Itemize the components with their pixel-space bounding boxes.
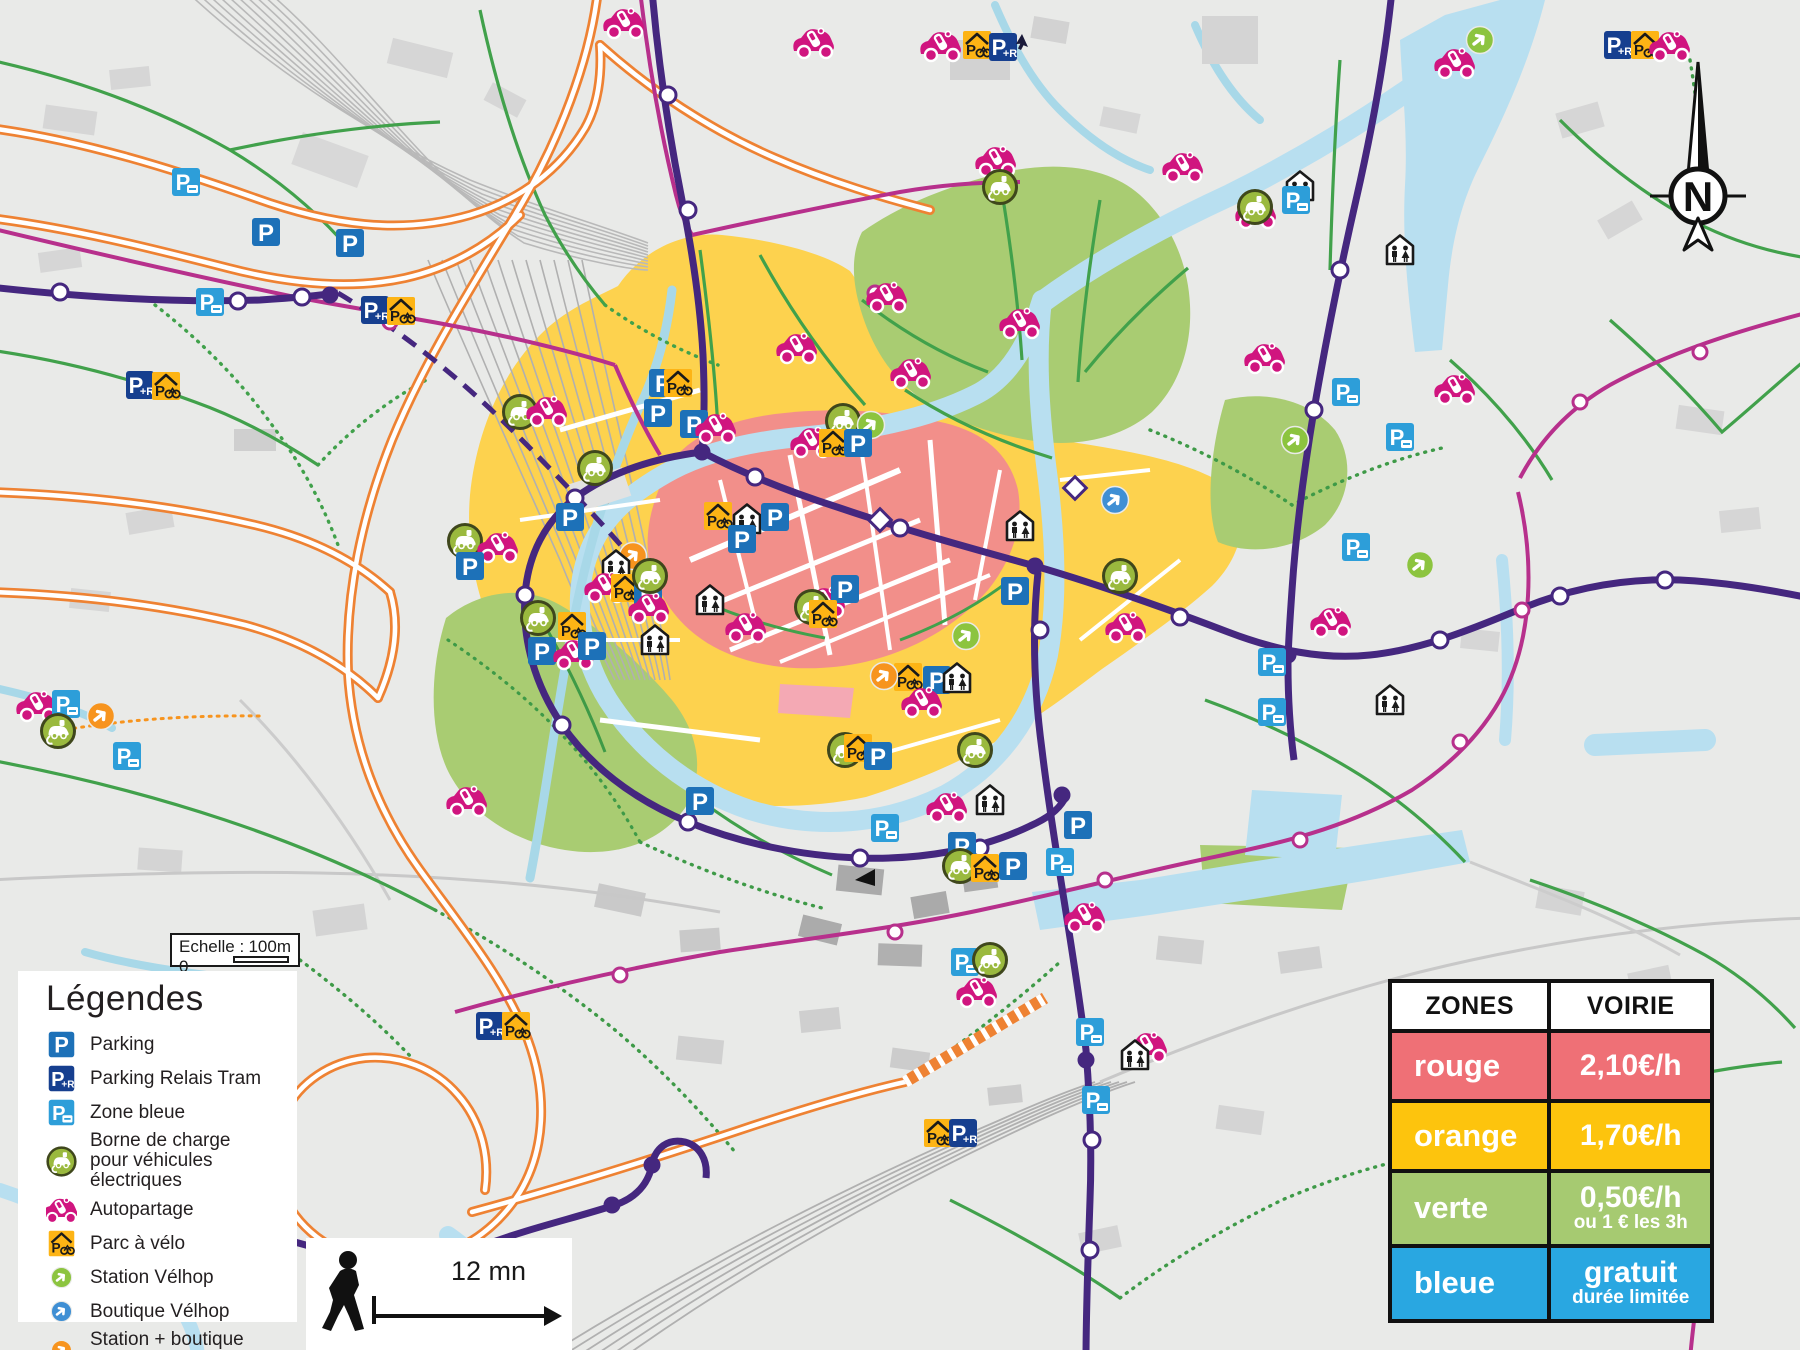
- legend-item-velo: Parc à vélo: [46, 1228, 287, 1259]
- bus-stop[interactable]: [1573, 395, 1587, 409]
- station-velhop-marker[interactable]: [1282, 427, 1309, 454]
- river: [1502, 560, 1508, 740]
- bus-stop[interactable]: [613, 968, 627, 982]
- parking-marker[interactable]: [761, 503, 789, 532]
- parking-relais-tram-marker-legend-icon: [46, 1063, 77, 1094]
- north-compass: N: [1650, 62, 1746, 250]
- river: [1595, 740, 1705, 745]
- autopartage-marker[interactable]: [1162, 152, 1203, 182]
- zone-bleue-marker[interactable]: [1082, 1086, 1110, 1114]
- toilettes-publiques-marker[interactable]: [977, 786, 1003, 815]
- zone-bleue-marker[interactable]: [1076, 1018, 1104, 1046]
- building: [1278, 946, 1323, 974]
- station-velhop-marker[interactable]: [953, 623, 980, 650]
- building: [137, 847, 182, 872]
- tram-stop[interactable]: [554, 717, 570, 733]
- building: [1202, 16, 1258, 64]
- tram-stop[interactable]: [294, 289, 310, 305]
- tram-junction: [1027, 558, 1044, 575]
- zone-bleue-marker[interactable]: [113, 742, 141, 770]
- tram-stop[interactable]: [747, 469, 763, 485]
- parking-marker[interactable]: [556, 503, 584, 532]
- parking-marker[interactable]: [528, 637, 556, 666]
- parc-a-velo-marker[interactable]: [502, 1012, 530, 1040]
- legend-item-zb: Zone bleue: [46, 1097, 287, 1128]
- zone-bleue-marker[interactable]: [1258, 698, 1286, 726]
- zone-bleue-marker[interactable]: [871, 814, 899, 842]
- table-header-zones: ZONES: [1392, 983, 1547, 1029]
- zone-area: [1211, 396, 1348, 549]
- legend-label: Boutique Vélhop: [90, 1302, 229, 1322]
- building: [1216, 1105, 1265, 1135]
- parking-marker[interactable]: [252, 218, 280, 247]
- tram-stop[interactable]: [1082, 1242, 1098, 1258]
- tram-stop[interactable]: [517, 587, 533, 603]
- building: [799, 1007, 841, 1033]
- station-velhop-marker[interactable]: [1467, 27, 1494, 54]
- tram-stop[interactable]: [1432, 632, 1448, 648]
- legend-label: Borne de chargepour véhicules électrique…: [90, 1131, 287, 1191]
- building: [291, 132, 368, 188]
- tram-stop[interactable]: [1084, 1132, 1100, 1148]
- canal-basin: [1245, 790, 1342, 860]
- building: [1156, 936, 1204, 965]
- parking-marker[interactable]: [999, 852, 1027, 881]
- zone-bleue-marker[interactable]: [1282, 186, 1310, 214]
- zone-bleue-marker-legend-icon: [46, 1097, 77, 1128]
- autopartage-marker[interactable]: [956, 977, 997, 1007]
- borne-de-charge-marker[interactable]: [42, 715, 75, 748]
- zone-bleue-marker[interactable]: [1342, 533, 1370, 561]
- boutique-velhop-marker[interactable]: [1102, 487, 1129, 514]
- bus-stop[interactable]: [1515, 603, 1529, 617]
- tram-junction: [1078, 1052, 1095, 1069]
- autopartage-marker[interactable]: [920, 31, 961, 61]
- autopartage-marker[interactable]: [1310, 607, 1351, 637]
- legend-item-pr: Parking Relais Tram: [46, 1063, 287, 1094]
- zone-price-bleue: gratuitdurée limitée: [1551, 1248, 1710, 1319]
- parking-marker[interactable]: [1064, 811, 1092, 840]
- zone-name-verte: verte: [1392, 1173, 1547, 1244]
- building: [1597, 200, 1643, 239]
- boutique-velhop-marker-legend-icon: [46, 1296, 77, 1327]
- tram-stop[interactable]: [1032, 622, 1048, 638]
- scale-bar: [233, 956, 289, 963]
- zone-area: [778, 684, 854, 718]
- borne-de-charge-marker[interactable]: [959, 734, 992, 767]
- pedestrian-icon: [322, 1251, 364, 1331]
- zone-price-verte: 0,50€/hou 1 € les 3h: [1551, 1173, 1710, 1244]
- table-header-voirie: VOIRIE: [1551, 983, 1710, 1029]
- borne-de-charge-marker[interactable]: [634, 560, 667, 593]
- parc-a-velo-marker[interactable]: [963, 31, 991, 59]
- parc-a-velo-marker[interactable]: [971, 854, 999, 882]
- zone-name-rouge: rouge: [1392, 1033, 1547, 1099]
- legend-item-bv: Boutique Vélhop: [46, 1296, 287, 1327]
- zone-bleue-marker[interactable]: [196, 288, 224, 316]
- parc-a-velo-marker[interactable]: [664, 369, 692, 397]
- parc-a-velo-marker[interactable]: [704, 502, 732, 530]
- walk-distance-arrow: [374, 1296, 562, 1326]
- tram-junction: [694, 444, 711, 461]
- borne-de-charge-marker[interactable]: [974, 944, 1007, 977]
- parking-marker[interactable]: [864, 742, 892, 771]
- station-boutique-velhop-marker[interactable]: [871, 663, 898, 690]
- tram-stop[interactable]: [230, 293, 246, 309]
- building: [387, 38, 453, 78]
- building: [1555, 101, 1604, 138]
- parking-marker[interactable]: [456, 552, 484, 581]
- zone-bleue-marker[interactable]: [1046, 848, 1074, 876]
- autopartage-marker[interactable]: [603, 8, 644, 38]
- building: [878, 943, 923, 967]
- legend-item-p: Parking: [46, 1029, 287, 1060]
- river: [995, 5, 1150, 170]
- tram-stop[interactable]: [1552, 588, 1568, 604]
- walk-scale-box: 12 mn: [306, 1238, 572, 1350]
- borne-de-charge-marker[interactable]: [522, 602, 555, 635]
- legend-panel: Légendes ParkingParking Relais TramZone …: [18, 971, 297, 1322]
- building: [1719, 507, 1761, 533]
- parc-a-velo-marker[interactable]: [809, 600, 837, 628]
- parking-marker[interactable]: [578, 632, 606, 661]
- borne-de-charge-marker-legend-icon: [46, 1146, 77, 1177]
- building: [43, 104, 98, 135]
- parc-a-velo-marker[interactable]: [819, 429, 847, 457]
- building: [312, 904, 367, 937]
- autopartage-marker[interactable]: [793, 28, 834, 58]
- building: [1030, 16, 1069, 44]
- tram-junction: [322, 287, 339, 304]
- bus-stop[interactable]: [888, 925, 902, 939]
- tram-junction: [604, 1197, 621, 1214]
- legend-label: Parking: [90, 1035, 154, 1055]
- tram-stop[interactable]: [852, 850, 868, 866]
- legend-label: Station + boutique Vélhop: [90, 1330, 287, 1350]
- zone-bleue-marker[interactable]: [1332, 378, 1360, 406]
- building: [1099, 106, 1140, 133]
- zone-name-orange: orange: [1392, 1103, 1547, 1169]
- building: [987, 1084, 1023, 1105]
- bus-stop[interactable]: [1693, 345, 1707, 359]
- parking-marker[interactable]: [336, 229, 364, 258]
- autopartage-marker[interactable]: [1244, 343, 1285, 373]
- bus-stop[interactable]: [1098, 873, 1112, 887]
- station-velhop-marker[interactable]: [1407, 552, 1434, 579]
- tram-stop[interactable]: [680, 202, 696, 218]
- station-velhop-marker-legend-icon: [46, 1262, 77, 1293]
- station-boutique-velhop-marker-legend-icon: [46, 1335, 77, 1350]
- parc-a-velo-marker[interactable]: [924, 1119, 952, 1147]
- legend-label: Parking Relais Tram: [90, 1069, 261, 1089]
- parking-relais-tram-marker[interactable]: [476, 1012, 504, 1040]
- tram-junction: [1054, 787, 1071, 804]
- borne-de-charge-marker[interactable]: [984, 171, 1017, 204]
- tram-stop[interactable]: [1332, 262, 1348, 278]
- borne-de-charge-marker[interactable]: [579, 452, 612, 485]
- building: [234, 429, 276, 451]
- lake: [1400, 0, 1545, 352]
- parking-marker[interactable]: [728, 525, 756, 554]
- legend-title: Légendes: [46, 979, 287, 1019]
- borne-de-charge-marker[interactable]: [1104, 560, 1137, 593]
- road-magenta: [1520, 312, 1800, 478]
- legend-item-charge: Borne de chargepour véhicules électrique…: [46, 1131, 287, 1191]
- map-scale-box: Echelle : 0 100m: [170, 933, 300, 967]
- building: [910, 891, 949, 919]
- zone-bleue-marker[interactable]: [1258, 648, 1286, 676]
- building: [676, 1036, 724, 1065]
- tram-stop[interactable]: [1172, 609, 1188, 625]
- parking-relais-tram-marker[interactable]: [126, 371, 154, 399]
- parking-marker[interactable]: [831, 575, 859, 604]
- zone-name-bleue: bleue: [1392, 1248, 1547, 1319]
- legend-item-auto: Autopartage: [46, 1194, 287, 1225]
- autopartage-marker-legend-icon: [46, 1194, 77, 1225]
- legend-item-sbv: Station + boutique Vélhop: [46, 1330, 287, 1350]
- station-boutique-velhop-marker[interactable]: [88, 703, 115, 730]
- walk-duration-label: 12 mn: [451, 1256, 526, 1287]
- tram-stop[interactable]: [1657, 572, 1673, 588]
- parking-marker-legend-icon: [46, 1029, 77, 1060]
- parc-a-velo-marker[interactable]: [152, 372, 180, 400]
- parking-marker[interactable]: [686, 787, 714, 816]
- compass-label: N: [1683, 173, 1713, 220]
- building: [109, 66, 151, 90]
- parc-a-velo-marker[interactable]: [387, 297, 415, 325]
- parking-relais-tram-marker[interactable]: [949, 1119, 977, 1147]
- zone-bleue-marker[interactable]: [1386, 423, 1414, 451]
- zones-pricing-table: ZONES VOIRIE rouge 2,10€/h orange 1,70€/…: [1388, 979, 1714, 1323]
- parking-marker[interactable]: [1001, 577, 1029, 606]
- tram-stop[interactable]: [660, 87, 676, 103]
- tram-stop[interactable]: [892, 520, 908, 536]
- building: [38, 247, 82, 273]
- tram-junction: [644, 1157, 661, 1174]
- legend-label: Autopartage: [90, 1200, 194, 1220]
- zone-price-rouge: 2,10€/h: [1551, 1033, 1710, 1099]
- toilettes-publiques-marker[interactable]: [1377, 686, 1403, 715]
- zone-bleue-marker[interactable]: [172, 168, 200, 196]
- legend-label: Zone bleue: [90, 1103, 185, 1123]
- building: [679, 928, 720, 953]
- bus-stop[interactable]: [1293, 833, 1307, 847]
- legend-item-sv: Station Vélhop: [46, 1262, 287, 1293]
- parking-relais-tram-marker[interactable]: [1604, 31, 1632, 59]
- legend-label: Station Vélhop: [90, 1268, 214, 1288]
- bus-stop[interactable]: [1453, 735, 1467, 749]
- parking-marker[interactable]: [644, 399, 672, 428]
- tram-stop[interactable]: [1306, 402, 1322, 418]
- city-parking-map: P P +R P P: [0, 0, 1800, 1350]
- borne-de-charge-marker[interactable]: [1239, 191, 1272, 224]
- parking-marker[interactable]: [844, 429, 872, 458]
- parking-relais-tram-marker[interactable]: [989, 33, 1017, 61]
- tram-stop[interactable]: [680, 814, 696, 830]
- legend-label: Parc à vélo: [90, 1234, 185, 1254]
- parc-a-velo-marker-legend-icon: [46, 1228, 77, 1259]
- tram-stop[interactable]: [52, 284, 68, 300]
- zone-price-orange: 1,70€/h: [1551, 1103, 1710, 1169]
- parking-relais-tram-marker[interactable]: [361, 296, 389, 324]
